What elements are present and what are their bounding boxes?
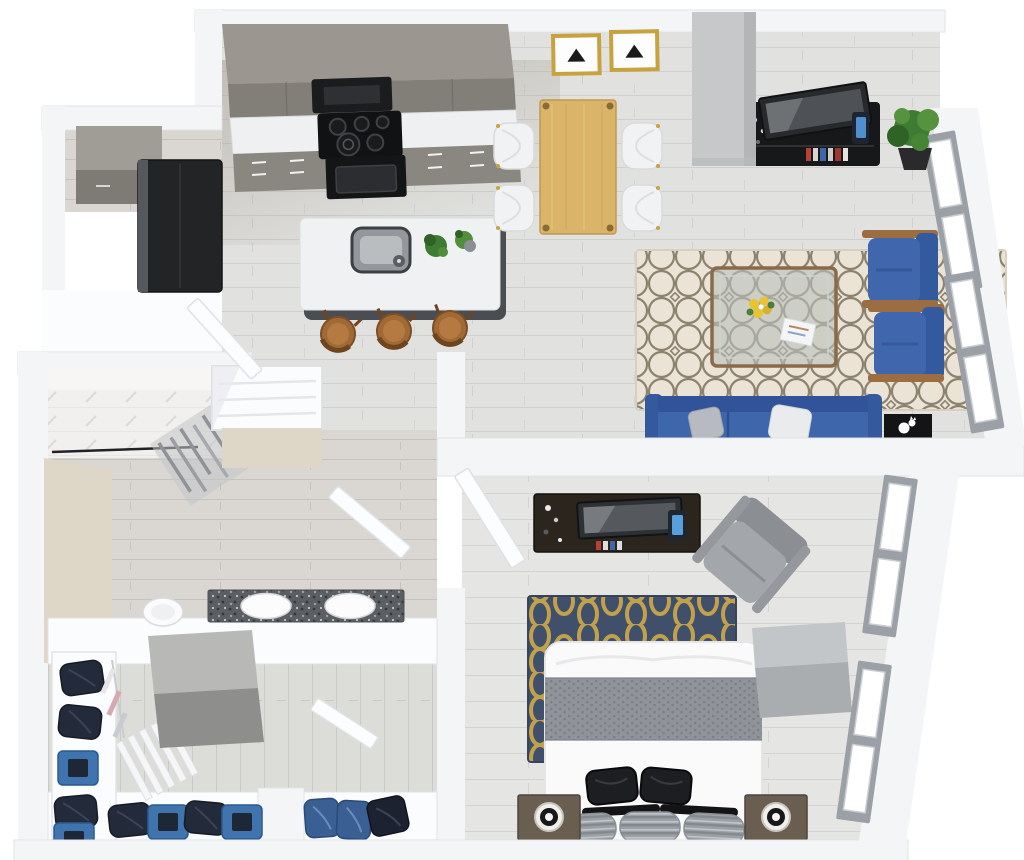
lamp-right [762, 803, 790, 831]
knit-throw [545, 678, 762, 740]
nightstand-left [518, 795, 580, 840]
upper-left-wall [195, 10, 222, 110]
shoes-1 [107, 802, 152, 838]
sofa-pillow-gray [687, 406, 725, 442]
alcove-left-wall [42, 106, 65, 296]
closet-shelf-divider [258, 788, 304, 845]
coffee-table [712, 268, 836, 366]
accent-chair-1 [862, 230, 938, 308]
nightstand-right [745, 795, 807, 840]
wall-desk [752, 622, 852, 718]
bedroom-dresser [534, 494, 700, 552]
folded-clothes-2 [57, 704, 102, 740]
vanity-sink-left [241, 594, 291, 619]
black-pillow-2 [640, 767, 693, 805]
bedroom-tv [577, 497, 683, 538]
toilet [143, 598, 183, 626]
console-speaker [852, 112, 869, 144]
shoes-6 [336, 800, 372, 840]
dining-chair-4 [622, 185, 662, 231]
vanity-sink-right [325, 594, 375, 619]
kitchen-island [300, 218, 506, 320]
folded-clothes-1 [59, 659, 105, 697]
bedroom [518, 491, 852, 848]
shoes-5 [304, 798, 341, 838]
linen-closet-front [222, 428, 322, 468]
cooktop [317, 111, 403, 160]
wall-art-1 [553, 35, 600, 74]
concrete-column [692, 12, 756, 166]
closet-island [148, 630, 264, 748]
bottom-wall [14, 840, 908, 860]
dining-table [540, 100, 616, 234]
storage-box-1 [58, 751, 98, 785]
dining-chair-3 [622, 123, 662, 169]
wall-art-2 [611, 31, 658, 70]
linen-closet [212, 366, 322, 430]
shoes-2 [148, 805, 188, 839]
dining-chair-1 [494, 123, 534, 169]
dining-chair-2 [494, 185, 534, 231]
refrigerator [138, 160, 222, 292]
dresser-speaker [668, 510, 686, 541]
lamp-left [535, 803, 563, 831]
floorplan-3d-render [0, 0, 1024, 860]
black-pillow-1 [585, 766, 638, 805]
shoes-7 [366, 794, 411, 837]
shoes-4 [222, 805, 262, 839]
range-hood [311, 77, 392, 114]
floorplan-canvas [0, 0, 1024, 860]
closet-bedroom-wall [437, 588, 465, 845]
upper-cabinets-top [222, 24, 514, 84]
oven [325, 155, 406, 200]
accent-chair-2 [868, 304, 944, 382]
outer-left-wall [18, 352, 48, 844]
